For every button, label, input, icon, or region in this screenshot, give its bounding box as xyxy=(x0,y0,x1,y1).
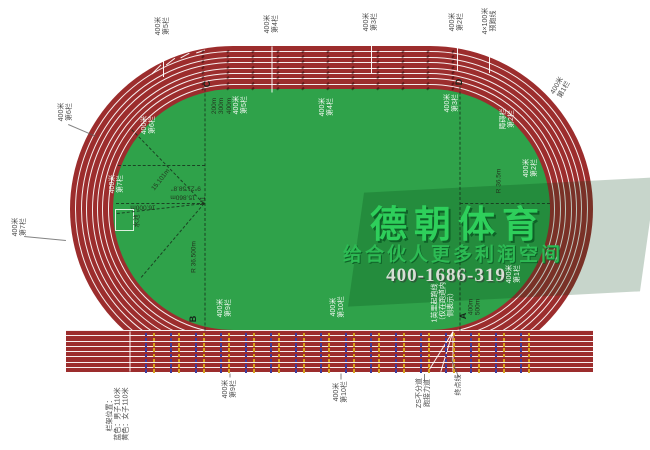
hurdle-mark-women xyxy=(478,338,480,342)
hurdle-mark-women xyxy=(528,369,530,373)
hurdle-mark-women xyxy=(303,343,305,347)
label-line: 400米 xyxy=(155,17,163,36)
label-line: 400米 xyxy=(264,15,272,34)
hurdle-mark-women xyxy=(428,333,430,337)
hurdle-mark-women xyxy=(253,333,255,337)
hurdle-mark-women xyxy=(528,348,530,352)
hurdle-mark-women xyxy=(403,354,405,358)
hurdle-mark-men xyxy=(145,354,147,358)
hurdle-mark-men xyxy=(395,354,397,358)
hurdle-mark-men xyxy=(320,338,322,342)
label-4x100m-relay: 4×100米预跑线 xyxy=(482,8,498,35)
label-dim-15860: 15.860m xyxy=(170,193,195,200)
hurdle-mark-men xyxy=(495,338,497,342)
hurdle-mark-men xyxy=(170,333,172,337)
label-line: 第3栏 xyxy=(452,94,460,113)
leader-line xyxy=(230,374,231,378)
hurdle-mark-women xyxy=(503,343,505,347)
label-line: 400米 xyxy=(444,94,452,113)
label-line: C xyxy=(202,81,212,88)
hurdle-mark-women xyxy=(228,364,230,368)
hurdle-mark-women xyxy=(428,369,430,373)
hurdle-mark-men xyxy=(370,359,372,363)
label-400m-hurdle2-in: 400米第2栏 xyxy=(523,159,539,178)
label-dim-16000: 16.000m xyxy=(130,203,155,210)
label-line: 第4栏 xyxy=(327,98,335,117)
hurdle-mark-men xyxy=(170,348,172,352)
hurdle-mark-men xyxy=(370,343,372,347)
hurdle-mark-women xyxy=(278,359,280,363)
hurdle-mark-men xyxy=(445,364,447,368)
label-zs-relay-lane: ZS不分道跑接力道 xyxy=(416,378,432,408)
hurdle-mark-men xyxy=(370,338,372,342)
hurdle-mark-women xyxy=(328,333,330,337)
hurdle-mark-women xyxy=(278,348,280,352)
hurdle-mark-men xyxy=(345,354,347,358)
label-400m-hurdle5-top: 400米第5栏 xyxy=(155,17,171,36)
hurdle-mark-men xyxy=(195,354,197,358)
track-marking-line xyxy=(371,46,372,73)
hurdle-mark-women xyxy=(303,333,305,337)
label-line: 第1栏 xyxy=(514,265,522,284)
point-d: D xyxy=(454,79,464,86)
label-line: 4×100米 xyxy=(482,8,490,35)
label-line: 第9栏 xyxy=(230,380,238,399)
hurdle-mark-women xyxy=(303,369,305,373)
label-400m-hurdle4-in: 400米第4栏 xyxy=(319,98,335,117)
label-water-pit: 水池 xyxy=(133,215,140,228)
hurdle-mark-women xyxy=(528,338,530,342)
hurdle-mark-men xyxy=(370,369,372,373)
hurdle-mark-men xyxy=(170,343,172,347)
hurdle-mark-women xyxy=(403,333,405,337)
hurdle-mark-men xyxy=(170,354,172,358)
hurdle-mark-men xyxy=(395,338,397,342)
label-line: B xyxy=(188,316,198,323)
hurdle-mark-men xyxy=(470,348,472,352)
hurdle-mark-men xyxy=(420,338,422,342)
hurdle-mark-women xyxy=(303,359,305,363)
hurdle-mark-women xyxy=(378,364,380,368)
hurdle-mark-women xyxy=(153,364,155,368)
point-b: B xyxy=(188,316,198,323)
label-line: 预跑线 xyxy=(490,8,498,35)
hurdle-mark-women xyxy=(328,369,330,373)
hurdle-mark-women xyxy=(478,364,480,368)
hurdle-mark-men xyxy=(395,348,397,352)
label-line: 400米 xyxy=(330,296,338,318)
hurdle-mark-women xyxy=(303,338,305,342)
label-400m-hurdle7-in: 400米第7栏 xyxy=(109,175,125,194)
hurdle-mark-women xyxy=(278,333,280,337)
label-line: 300m xyxy=(218,98,225,114)
slogan-watermark: 给合伙人更多利润空间 xyxy=(343,240,563,267)
hurdle-mark-men xyxy=(495,369,497,373)
hurdle-mark-women xyxy=(403,338,405,342)
hurdle-mark-men xyxy=(245,369,247,373)
hurdle-mark-men xyxy=(270,338,272,342)
hurdle-mark-men xyxy=(195,333,197,337)
hurdle-mark-women xyxy=(328,338,330,342)
label-line: 400米 xyxy=(333,381,341,403)
hurdle-mark-women xyxy=(453,348,455,352)
hurdle-mark-men xyxy=(445,359,447,363)
point-a: A xyxy=(458,313,468,320)
hurdle-mark-women xyxy=(278,338,280,342)
label-line: 障碍栏 xyxy=(500,109,508,130)
hurdle-mark-women xyxy=(328,354,330,358)
hurdle-mark-men xyxy=(320,359,322,363)
track-marking-line xyxy=(457,46,458,71)
label-line: 400m xyxy=(226,98,233,114)
hurdle-mark-men xyxy=(395,364,397,368)
hurdle-mark-men xyxy=(470,343,472,347)
label-line: 400米 xyxy=(109,175,117,194)
hurdle-mark-women xyxy=(503,359,505,363)
hurdle-mark-women xyxy=(228,369,230,373)
hurdle-mark-men xyxy=(270,348,272,352)
hurdle-mark-women xyxy=(503,338,505,342)
hurdle-mark-men xyxy=(470,354,472,358)
label-line: D xyxy=(454,79,464,86)
hurdle-mark-men xyxy=(395,369,397,373)
label-line: 200m xyxy=(211,98,218,114)
hurdle-mark-women xyxy=(203,348,205,352)
hurdle-mark-women xyxy=(228,338,230,342)
hurdle-mark-women xyxy=(378,338,380,342)
hurdle-mark-women xyxy=(178,348,180,352)
hurdle-mark-men xyxy=(520,343,522,347)
hurdle-mark-women xyxy=(353,369,355,373)
hurdle-mark-women xyxy=(153,343,155,347)
hurdle-mark-men xyxy=(495,343,497,347)
label-line: （仅在跑道内 xyxy=(439,282,447,324)
hurdle-mark-men xyxy=(195,359,197,363)
hurdle-mark-men xyxy=(370,354,372,358)
hurdle-mark-men xyxy=(445,333,447,337)
label-line: 第2栏 xyxy=(531,159,539,178)
label-line: 400米 xyxy=(363,13,371,32)
hurdle-mark-men xyxy=(245,359,247,363)
label-line: 水池 xyxy=(133,215,140,228)
hurdle-mark-women xyxy=(478,333,480,337)
hurdle-mark-men xyxy=(145,333,147,337)
label-line: M1 xyxy=(199,196,206,205)
hurdle-mark-men xyxy=(220,333,222,337)
label-line: 400米 xyxy=(506,265,514,284)
label-400m-hurdle5-in: 400米第5栏 xyxy=(233,96,249,115)
label-1mile-start: 1英里起跑线（仅在跑道内侧表示） xyxy=(431,282,454,324)
hurdle-mark-women xyxy=(403,364,405,368)
label-line: 黄色：女子110米 xyxy=(122,387,130,440)
hurdle-mark-men xyxy=(295,354,297,358)
hurdle-mark-men xyxy=(220,348,222,352)
hurdle-mark-men xyxy=(295,369,297,373)
hurdle-mark-men xyxy=(495,348,497,352)
hurdle-mark-women xyxy=(478,343,480,347)
hurdle-mark-women xyxy=(153,354,155,358)
hurdle-mark-men xyxy=(320,369,322,373)
track-diagram: 德朝体育 给合伙人更多利润空间 400-1686-319 400米第5栏400米… xyxy=(0,0,650,450)
label-line: 第7栏 xyxy=(20,218,28,237)
hurdle-mark-men xyxy=(445,343,447,347)
hurdle-mark-men xyxy=(445,338,447,342)
hurdle-mark-men xyxy=(395,333,397,337)
hurdle-mark-women xyxy=(203,359,205,363)
hurdle-mark-men xyxy=(245,333,247,337)
hurdle-mark-women xyxy=(203,343,205,347)
hurdle-mark-men xyxy=(245,338,247,342)
label-line: R 36.5m xyxy=(495,169,502,194)
label-finish-line: 终点线 xyxy=(455,375,463,396)
label-line: A xyxy=(458,313,468,320)
hurdle-mark-men xyxy=(495,333,497,337)
hurdle-mark-men xyxy=(470,338,472,342)
label-line: 400米 xyxy=(58,103,66,122)
hurdle-mark-men xyxy=(295,348,297,352)
label-line: 蓝色：男子110米 xyxy=(114,387,122,440)
label-line: 400米 xyxy=(141,116,149,135)
hurdle-mark-women xyxy=(478,369,480,373)
label-line: 400米 xyxy=(222,380,230,399)
hurdle-mark-men xyxy=(270,343,272,347)
hurdle-mark-women xyxy=(178,333,180,337)
hurdle-mark-men xyxy=(445,354,447,358)
track-marking-line xyxy=(272,47,273,93)
hurdle-mark-women xyxy=(203,333,205,337)
hurdle-mark-men xyxy=(320,348,322,352)
hurdle-mark-men xyxy=(220,369,222,373)
hurdle-mark-men xyxy=(345,333,347,337)
leader-line xyxy=(24,236,66,241)
hurdle-mark-women xyxy=(178,343,180,347)
hurdle-mark-women xyxy=(453,333,455,337)
hurdle-mark-men xyxy=(520,354,522,358)
label-radius-right: R 36.5m xyxy=(495,169,502,194)
hurdle-mark-men xyxy=(320,343,322,347)
hurdle-mark-women xyxy=(253,369,255,373)
hurdle-mark-men xyxy=(395,343,397,347)
hurdle-mark-women xyxy=(453,354,455,358)
hurdle-mark-men xyxy=(370,364,372,368)
label-line: 第7栏 xyxy=(117,175,125,194)
hurdle-mark-women xyxy=(378,354,380,358)
label-radius-left: R 36.500m xyxy=(190,241,197,273)
hurdle-mark-men xyxy=(420,369,422,373)
label-line: 第9栏 xyxy=(225,299,233,318)
hurdle-mark-women xyxy=(378,359,380,363)
label-400m-hurdle9-in: 400米第9栏 xyxy=(217,299,233,318)
hurdle-mark-men xyxy=(420,348,422,352)
hurdle-mark-men xyxy=(170,338,172,342)
hurdle-mark-men xyxy=(470,364,472,368)
hurdle-mark-women xyxy=(378,348,380,352)
hurdle-mark-men xyxy=(320,364,322,368)
hurdle-mark-women xyxy=(503,369,505,373)
hurdle-mark-men xyxy=(270,354,272,358)
hurdle-mark-men xyxy=(245,354,247,358)
label-line: 第5栏 xyxy=(241,96,249,115)
hurdle-mark-men xyxy=(420,333,422,337)
hurdle-mark-men xyxy=(520,338,522,342)
label-steeple-hurdle2-in: 障碍栏第2栏 xyxy=(500,109,516,130)
hurdle-mark-women xyxy=(528,333,530,337)
label-line: 9°21'58.8" xyxy=(171,184,201,191)
hurdle-mark-women xyxy=(428,364,430,368)
hurdle-mark-women xyxy=(503,354,505,358)
hurdle-mark-women xyxy=(503,364,505,368)
hurdle-mark-men xyxy=(145,338,147,342)
hurdle-mark-women xyxy=(528,359,530,363)
hurdle-mark-women xyxy=(528,343,530,347)
hurdle-mark-women xyxy=(353,364,355,368)
hurdle-mark-women xyxy=(178,354,180,358)
hurdle-mark-women xyxy=(278,354,280,358)
hurdle-mark-men xyxy=(345,338,347,342)
label-line: 400m xyxy=(468,299,475,315)
hurdle-mark-men xyxy=(345,348,347,352)
label-400m-hurdle7-left: 400米第7栏 xyxy=(12,218,28,237)
hurdle-mark-men xyxy=(270,359,272,363)
hurdle-mark-men xyxy=(295,364,297,368)
track-marking-line xyxy=(489,46,490,73)
hurdle-mark-men xyxy=(345,369,347,373)
leader-line xyxy=(341,374,342,380)
hurdle-mark-men xyxy=(395,359,397,363)
hurdle-mark-women xyxy=(428,338,430,342)
hurdle-mark-women xyxy=(303,348,305,352)
hurdle-mark-women xyxy=(378,333,380,337)
label-c-distances: 200m300m400m xyxy=(211,98,233,114)
construction-line xyxy=(118,165,205,166)
hurdle-mark-men xyxy=(245,348,247,352)
hurdle-mark-men xyxy=(220,359,222,363)
hurdle-mark-women xyxy=(403,369,405,373)
label-400m-hurdle10-bottom: 400米第10栏 xyxy=(333,381,349,403)
label-hurdle-legend: 栏架位置：蓝色：男子110米黄色：女子110米 xyxy=(106,387,129,440)
hurdle-mark-men xyxy=(320,354,322,358)
hurdle-mark-men xyxy=(370,333,372,337)
label-400m-hurdle3-in: 400米第3栏 xyxy=(444,94,460,113)
hurdle-mark-women xyxy=(403,343,405,347)
hurdle-mark-women xyxy=(428,343,430,347)
hurdle-mark-men xyxy=(345,359,347,363)
hurdle-mark-women xyxy=(278,364,280,368)
point-c: C xyxy=(202,81,212,88)
hurdle-mark-women xyxy=(278,343,280,347)
infield: 德朝体育 给合伙人更多利润空间 400-1686-319 xyxy=(113,89,550,330)
hurdle-mark-men xyxy=(520,348,522,352)
hurdle-mark-men xyxy=(520,369,522,373)
hurdle-mark-men xyxy=(195,343,197,347)
hurdle-mark-women xyxy=(328,364,330,368)
label-line: 1英里起跑线 xyxy=(431,282,439,324)
hurdle-mark-women xyxy=(153,333,155,337)
hurdle-mark-women xyxy=(203,369,205,373)
hurdle-mark-women xyxy=(403,348,405,352)
hurdle-mark-women xyxy=(428,348,430,352)
hurdle-mark-men xyxy=(220,343,222,347)
hurdle-mark-men xyxy=(145,359,147,363)
hurdle-mark-women xyxy=(328,359,330,363)
hurdle-mark-women xyxy=(353,359,355,363)
hurdle-mark-women xyxy=(353,343,355,347)
track-marking-line xyxy=(163,48,164,77)
hurdle-mark-women xyxy=(153,348,155,352)
label-400m-hurdle1-in: 400米第1栏 xyxy=(506,265,522,284)
hurdle-mark-women xyxy=(478,348,480,352)
label-400m-hurdle3-top: 400米第3栏 xyxy=(363,13,379,32)
hurdle-mark-men xyxy=(295,343,297,347)
hurdle-mark-women xyxy=(503,333,505,337)
hurdle-mark-men xyxy=(345,343,347,347)
hurdle-mark-men xyxy=(495,359,497,363)
label-line: ZS不分道 xyxy=(416,378,424,408)
hurdle-mark-women xyxy=(403,359,405,363)
hurdle-mark-women xyxy=(453,338,455,342)
hurdle-mark-women xyxy=(378,343,380,347)
label-line: 400米 xyxy=(319,98,327,117)
label-line: 第5栏 xyxy=(163,17,171,36)
label-line: 500m xyxy=(475,299,482,315)
hurdle-mark-women xyxy=(353,338,355,342)
hurdle-mark-women xyxy=(228,354,230,358)
hurdle-mark-women xyxy=(428,359,430,363)
hurdle-mark-women xyxy=(228,359,230,363)
hurdle-mark-men xyxy=(470,369,472,373)
label-angle: 9°21'58.8" xyxy=(171,184,201,191)
hurdle-mark-men xyxy=(145,364,147,368)
construction-line xyxy=(460,87,461,331)
hurdle-mark-women xyxy=(228,348,230,352)
hurdle-mark-men xyxy=(270,369,272,373)
hurdle-mark-men xyxy=(520,359,522,363)
label-line: 第4栏 xyxy=(272,15,280,34)
hurdle-mark-women xyxy=(253,348,255,352)
hurdle-mark-men xyxy=(195,338,197,342)
label-line: 栏架位置： xyxy=(106,387,114,440)
label-400m-hurdle1-track: 400米第1栏 xyxy=(550,76,573,100)
hurdle-mark-women xyxy=(478,359,480,363)
hurdle-mark-women xyxy=(453,343,455,347)
label-line: 16.000m xyxy=(130,203,155,210)
hurdle-mark-men xyxy=(495,354,497,358)
hurdle-mark-men xyxy=(170,369,172,373)
hurdle-mark-men xyxy=(245,364,247,368)
hurdle-mark-women xyxy=(278,369,280,373)
label-line: 15.860m xyxy=(170,193,195,200)
label-line: 跑接力道 xyxy=(424,378,432,408)
label-400m-hurdle2-top: 400米第2栏 xyxy=(449,13,465,32)
hurdle-mark-men xyxy=(220,354,222,358)
hurdle-mark-men xyxy=(470,333,472,337)
hurdle-mark-women xyxy=(228,343,230,347)
hurdle-mark-men xyxy=(520,364,522,368)
label-line: 400米 xyxy=(449,13,457,32)
hurdle-mark-men xyxy=(520,333,522,337)
construction-line xyxy=(205,89,206,331)
hurdle-mark-men xyxy=(220,338,222,342)
hurdle-mark-women xyxy=(503,348,505,352)
hurdle-mark-women xyxy=(253,354,255,358)
track-marking-line xyxy=(130,332,131,372)
hurdle-mark-women xyxy=(203,338,205,342)
hurdle-mark-women xyxy=(153,359,155,363)
hurdle-mark-men xyxy=(445,348,447,352)
hurdle-mark-women xyxy=(203,364,205,368)
hurdle-mark-women xyxy=(178,364,180,368)
label-line: 第6栏 xyxy=(66,103,74,122)
